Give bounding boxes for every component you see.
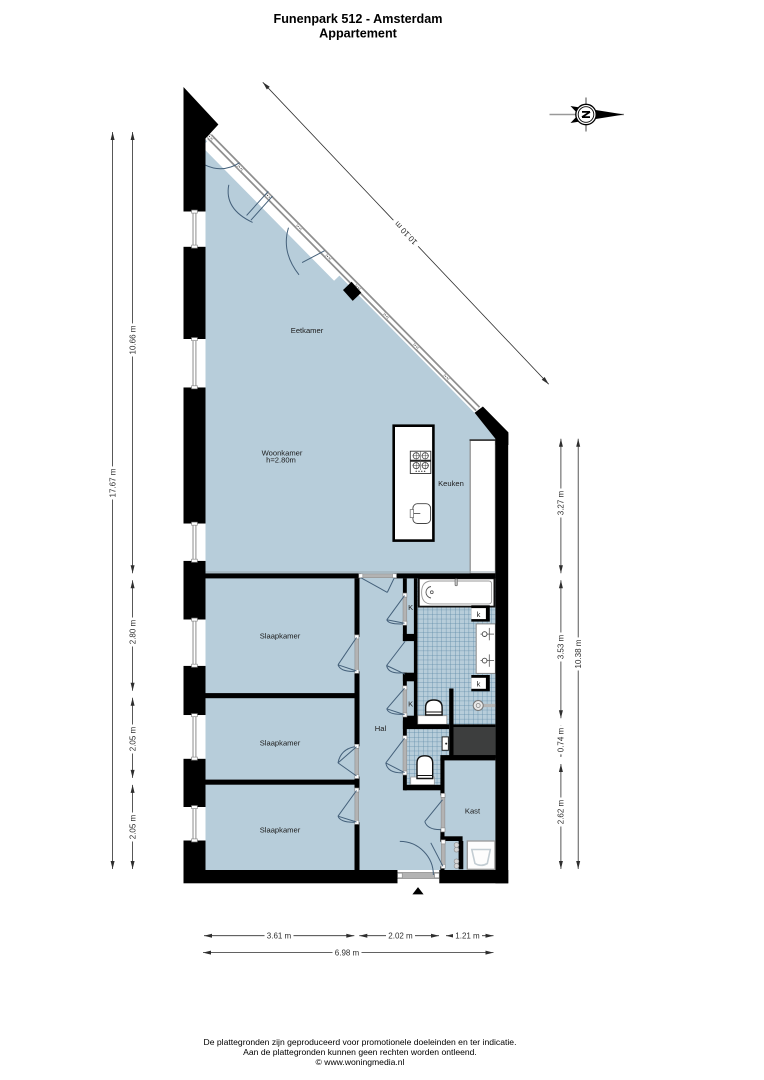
svg-text:2.02 m: 2.02 m	[388, 932, 413, 941]
svg-text:Slaapkamer: Slaapkamer	[260, 739, 301, 748]
svg-text:17.67 m: 17.67 m	[108, 468, 117, 497]
svg-text:© www.woningmedia.nl: © www.woningmedia.nl	[316, 1057, 405, 1067]
svg-text:6.98 m: 6.98 m	[335, 948, 360, 957]
svg-text:0.74 m: 0.74 m	[557, 727, 566, 752]
svg-text:10.38 m: 10.38 m	[574, 639, 583, 668]
svg-text:K: K	[408, 700, 413, 709]
svg-text:Keuken: Keuken	[438, 479, 464, 488]
svg-text:Appartement: Appartement	[319, 27, 397, 41]
svg-text:K: K	[408, 603, 413, 612]
svg-text:k: k	[477, 610, 481, 619]
svg-text:2.05 m: 2.05 m	[128, 726, 137, 751]
svg-text:De plattegronden zijn geproduc: De plattegronden zijn geproduceerd voor …	[204, 1037, 517, 1047]
svg-text:Eetkamer: Eetkamer	[291, 326, 324, 335]
svg-text:h=2.80m: h=2.80m	[266, 455, 296, 464]
svg-text:2.62 m: 2.62 m	[557, 799, 566, 824]
svg-text:2.80 m: 2.80 m	[128, 619, 137, 644]
svg-text:Slaapkamer: Slaapkamer	[260, 632, 301, 641]
svg-text:3.53 m: 3.53 m	[557, 634, 566, 659]
svg-text:3.61 m: 3.61 m	[267, 932, 292, 941]
svg-text:Funenpark 512 - Amsterdam: Funenpark 512 - Amsterdam	[274, 12, 443, 26]
svg-text:1.21 m: 1.21 m	[455, 932, 480, 941]
svg-text:3.27 m: 3.27 m	[557, 490, 566, 515]
svg-text:10.10 m: 10.10 m	[393, 219, 420, 246]
svg-text:Hal: Hal	[375, 724, 387, 733]
svg-text:Kast: Kast	[465, 807, 481, 816]
svg-text:Slaapkamer: Slaapkamer	[260, 826, 301, 835]
svg-text:Aan de plattegronden kunnen ge: Aan de plattegronden kunnen geen rechten…	[243, 1047, 477, 1057]
svg-text:k: k	[477, 680, 481, 689]
svg-text:10.66 m: 10.66 m	[128, 325, 137, 354]
svg-text:2.05 m: 2.05 m	[128, 814, 137, 839]
